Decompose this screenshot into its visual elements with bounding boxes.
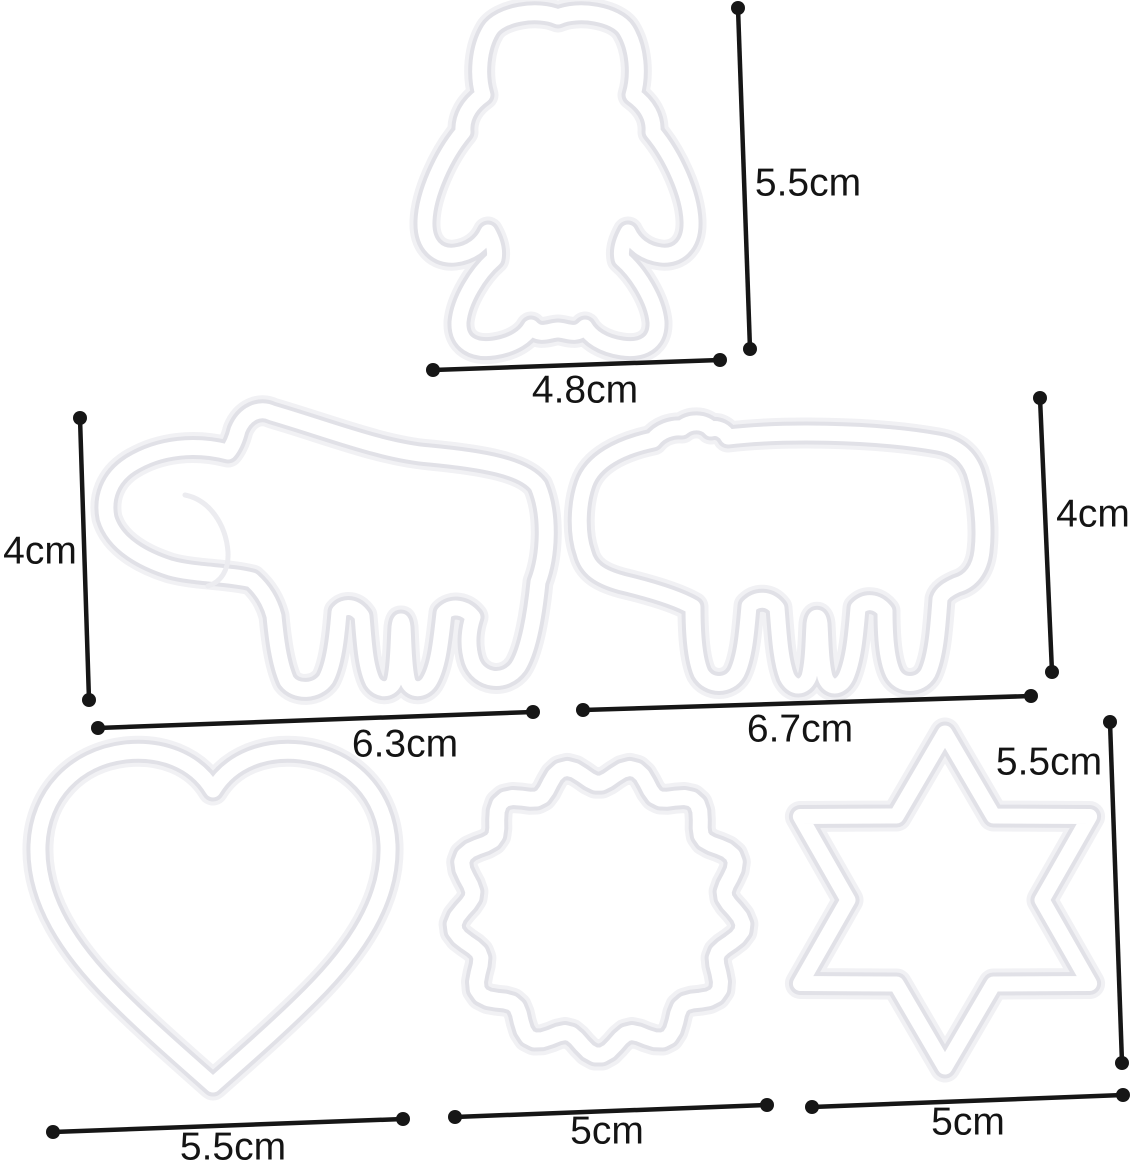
dimension-dot: [526, 705, 540, 719]
dimension-dot: [1033, 391, 1047, 405]
measurement-rhino-height: 4cm: [1056, 495, 1130, 534]
heart-cutter: [38, 751, 388, 1085]
measurement-elephant-width: 6.3cm: [352, 725, 458, 764]
dimension-dot: [713, 353, 727, 367]
rhino-cutter: [579, 423, 983, 686]
scalloped-circle-cutter: [454, 768, 743, 1055]
measurement-circle-width: 5cm: [570, 1112, 644, 1151]
measurement-rhino-width: 6.7cm: [747, 710, 853, 749]
dimension-line-elephant-width: [91, 705, 540, 735]
dimension-dot: [1045, 665, 1059, 679]
measurement-bear-height: 5.5cm: [755, 164, 861, 203]
measurement-bear-width: 4.8cm: [532, 371, 638, 410]
dimension-line-bear-height: [731, 1, 757, 356]
dimension-dot: [576, 703, 590, 717]
dimension-dot: [82, 693, 96, 707]
dimension-dot: [73, 411, 87, 425]
dimension-dot: [426, 363, 440, 377]
dimension-line-star-height: [1103, 715, 1129, 1070]
measurement-star-height: 5.5cm: [996, 743, 1102, 782]
measurement-star-width: 5cm: [931, 1103, 1005, 1142]
dimension-dot: [743, 342, 757, 356]
dimension-dot: [448, 1110, 462, 1124]
dimension-dot: [1103, 715, 1117, 729]
bear-cutter: [425, 13, 691, 349]
dimension-dot: [1115, 1056, 1129, 1070]
dimension-dot: [805, 1100, 819, 1114]
dimension-dot: [46, 1125, 60, 1139]
dimension-dot: [760, 1098, 774, 1112]
dimension-dot: [1116, 1088, 1130, 1102]
heart-edge: [38, 751, 388, 1085]
dimension-dot: [396, 1112, 410, 1126]
dimension-line-rhino-height: [1033, 391, 1059, 679]
dimension-dot: [1024, 689, 1038, 703]
measurement-heart-width: 5.5cm: [180, 1128, 286, 1167]
elephant-cutter: [106, 411, 546, 690]
dimension-dot: [731, 1, 745, 15]
dimension-dot: [91, 721, 105, 735]
dimension-diagram: 5.5cm 4.8cm 4cm 4cm 6.3cm 6.7cm 5.5cm 5.…: [0, 0, 1134, 1165]
measurement-elephant-height: 4cm: [3, 532, 77, 571]
figure-canvas: [0, 0, 1134, 1165]
